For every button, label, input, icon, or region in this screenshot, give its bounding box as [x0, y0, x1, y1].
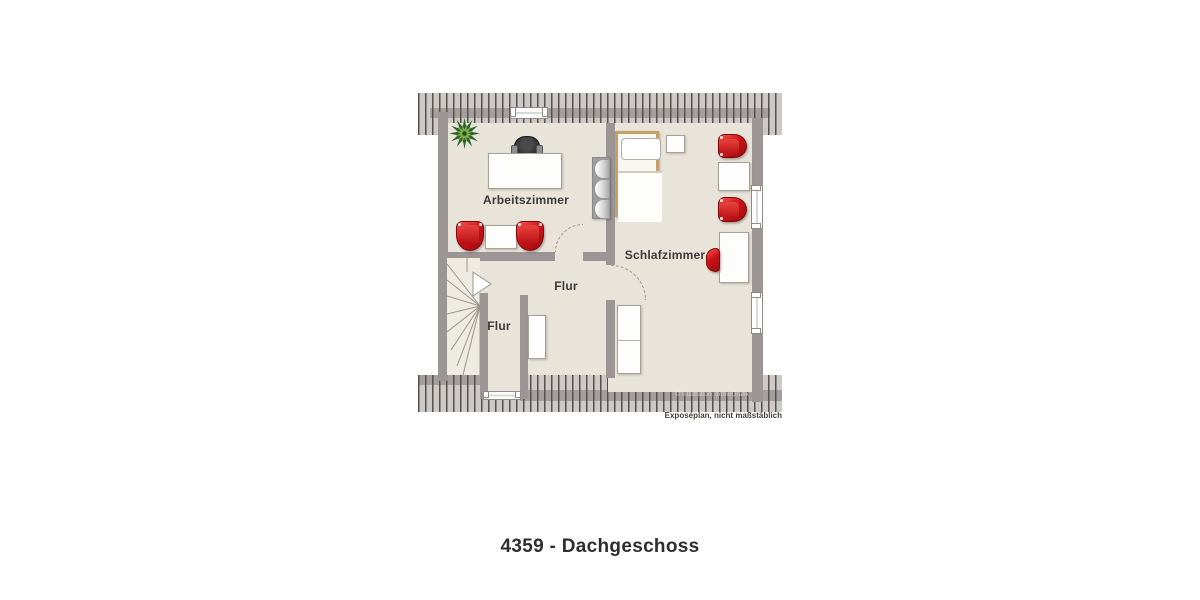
desk-study — [488, 153, 562, 189]
exterior-wall-bottom-left — [418, 375, 488, 385]
nightstand — [666, 135, 685, 153]
room-label-flur-links: Flur — [479, 319, 519, 333]
wardrobe-corridor — [528, 315, 546, 359]
floorplan: Arbeitszimmer Schlafzimmer Flur Flur © I… — [418, 90, 784, 424]
plant-icon — [448, 117, 481, 150]
window-right-lower — [751, 292, 763, 334]
side-table-study — [485, 225, 517, 249]
room-label-schlafzimmer: Schlafzimmer — [595, 248, 735, 262]
page-title: 4359 - Dachgeschoss — [0, 536, 1200, 558]
shelf-icon — [592, 157, 610, 219]
room-label-arbeitszimmer: Arbeitszimmer — [456, 193, 596, 207]
exterior-wall-top — [430, 108, 770, 118]
illustration-watermark: © Illustration: ImmoGrafik — [670, 391, 754, 398]
window-corridor-bottom — [483, 391, 521, 400]
bed-icon — [615, 131, 659, 217]
wall-divider-lower — [606, 300, 615, 378]
floorplan-page: Arbeitszimmer Schlafzimmer Flur Flur © I… — [0, 0, 1200, 600]
window-top — [510, 107, 548, 119]
wall-corridor-east — [520, 295, 528, 399]
disclaimer-text: Exposéplan, nicht maßstäblich — [588, 411, 782, 420]
window-right-upper — [751, 185, 763, 229]
wall-right — [752, 118, 763, 402]
armchair-upper-icon — [718, 134, 747, 158]
coffee-table-bedroom — [718, 162, 750, 191]
room-label-flur-mitte: Flur — [541, 279, 591, 293]
stairs — [447, 258, 493, 375]
cabinet-bedroom — [617, 305, 641, 374]
armchair-lower-icon — [718, 197, 747, 222]
floor-bedroom-extension — [608, 375, 752, 392]
